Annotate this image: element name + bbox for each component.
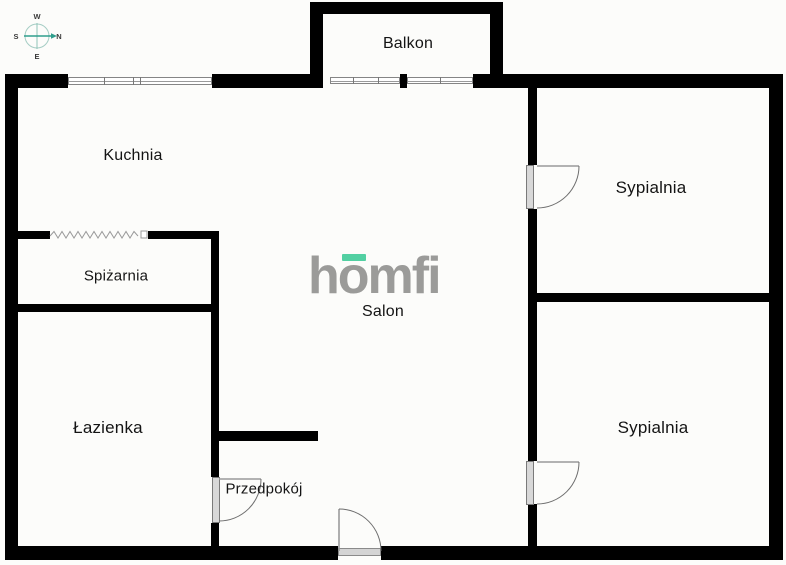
door-arc-bedroom-1	[537, 166, 579, 208]
room-label-lazienka: Łazienka	[73, 418, 143, 438]
logo-macron-accent	[342, 254, 366, 261]
wall-between-bedrooms	[528, 293, 783, 302]
floor-plan: W S N E homfi Balkon Kuchnia Spiżarnia Ł…	[0, 0, 786, 565]
wall-hallway-stub	[219, 431, 318, 441]
compass-rose: W S N E	[6, 6, 70, 70]
compass-label-north: N	[56, 32, 61, 41]
wall-salon-bedrooms-upper	[528, 88, 537, 165]
pantry-zigzag-partition	[50, 232, 138, 239]
wall-right	[769, 74, 783, 560]
wall-top-mid	[212, 74, 310, 88]
compass-label-south: S	[13, 32, 18, 41]
room-label-przedpokoj: Przedpokój	[225, 481, 302, 498]
kitchen-window-divider-3	[140, 77, 141, 85]
wall-top-right	[473, 74, 783, 88]
kitchen-window-divider-2	[133, 77, 134, 85]
wall-pantry-bottom	[17, 304, 219, 312]
kitchen-window-divider-1	[104, 77, 105, 85]
door-panel-bedroom-1	[526, 165, 534, 209]
wall-pantry-top-left	[17, 231, 50, 239]
balcony-wall-top	[310, 2, 503, 14]
wall-bottom-right	[381, 546, 783, 560]
compass-label-west: W	[33, 12, 41, 21]
logo-part-mfi: mfi	[368, 247, 440, 305]
door-panel-bathroom	[212, 477, 220, 523]
wall-left-column-upper	[211, 232, 219, 477]
balcony-wall-left	[310, 2, 323, 88]
room-label-spizarnia: Spiżarnia	[84, 268, 148, 285]
compass-label-east: E	[34, 52, 39, 61]
door-panel-bedroom-2	[526, 461, 534, 505]
logo-part-h: h	[308, 247, 338, 305]
room-label-sypialnia-2: Sypialnia	[618, 418, 689, 438]
balcony-door-mullion	[400, 74, 407, 88]
balcony-window-divider-2	[378, 77, 379, 84]
door-arc-entrance	[339, 509, 381, 551]
homfi-watermark: homfi	[308, 250, 440, 302]
wall-left	[5, 74, 18, 560]
wall-left-column-lower	[211, 523, 219, 546]
balcony-window-left	[330, 77, 400, 84]
room-label-balkon: Balkon	[383, 35, 433, 53]
wall-pantry-top-right	[148, 231, 219, 239]
pantry-partition-end-bracket	[141, 231, 147, 238]
door-arc-bedroom-2	[537, 462, 579, 504]
balcony-wall-right	[490, 2, 503, 88]
balcony-window-divider-3	[440, 77, 441, 84]
wall-bottom-left	[5, 546, 338, 560]
room-label-salon: Salon	[362, 303, 404, 321]
balcony-window-divider-1	[353, 77, 354, 84]
logo-part-o: o	[338, 250, 368, 302]
room-label-sypialnia-1: Sypialnia	[616, 178, 687, 198]
room-label-kuchnia: Kuchnia	[103, 147, 162, 165]
wall-salon-bedrooms-lower	[528, 504, 537, 546]
entrance-door-sill	[338, 548, 381, 556]
wall-salon-bedrooms-mid	[528, 209, 537, 461]
